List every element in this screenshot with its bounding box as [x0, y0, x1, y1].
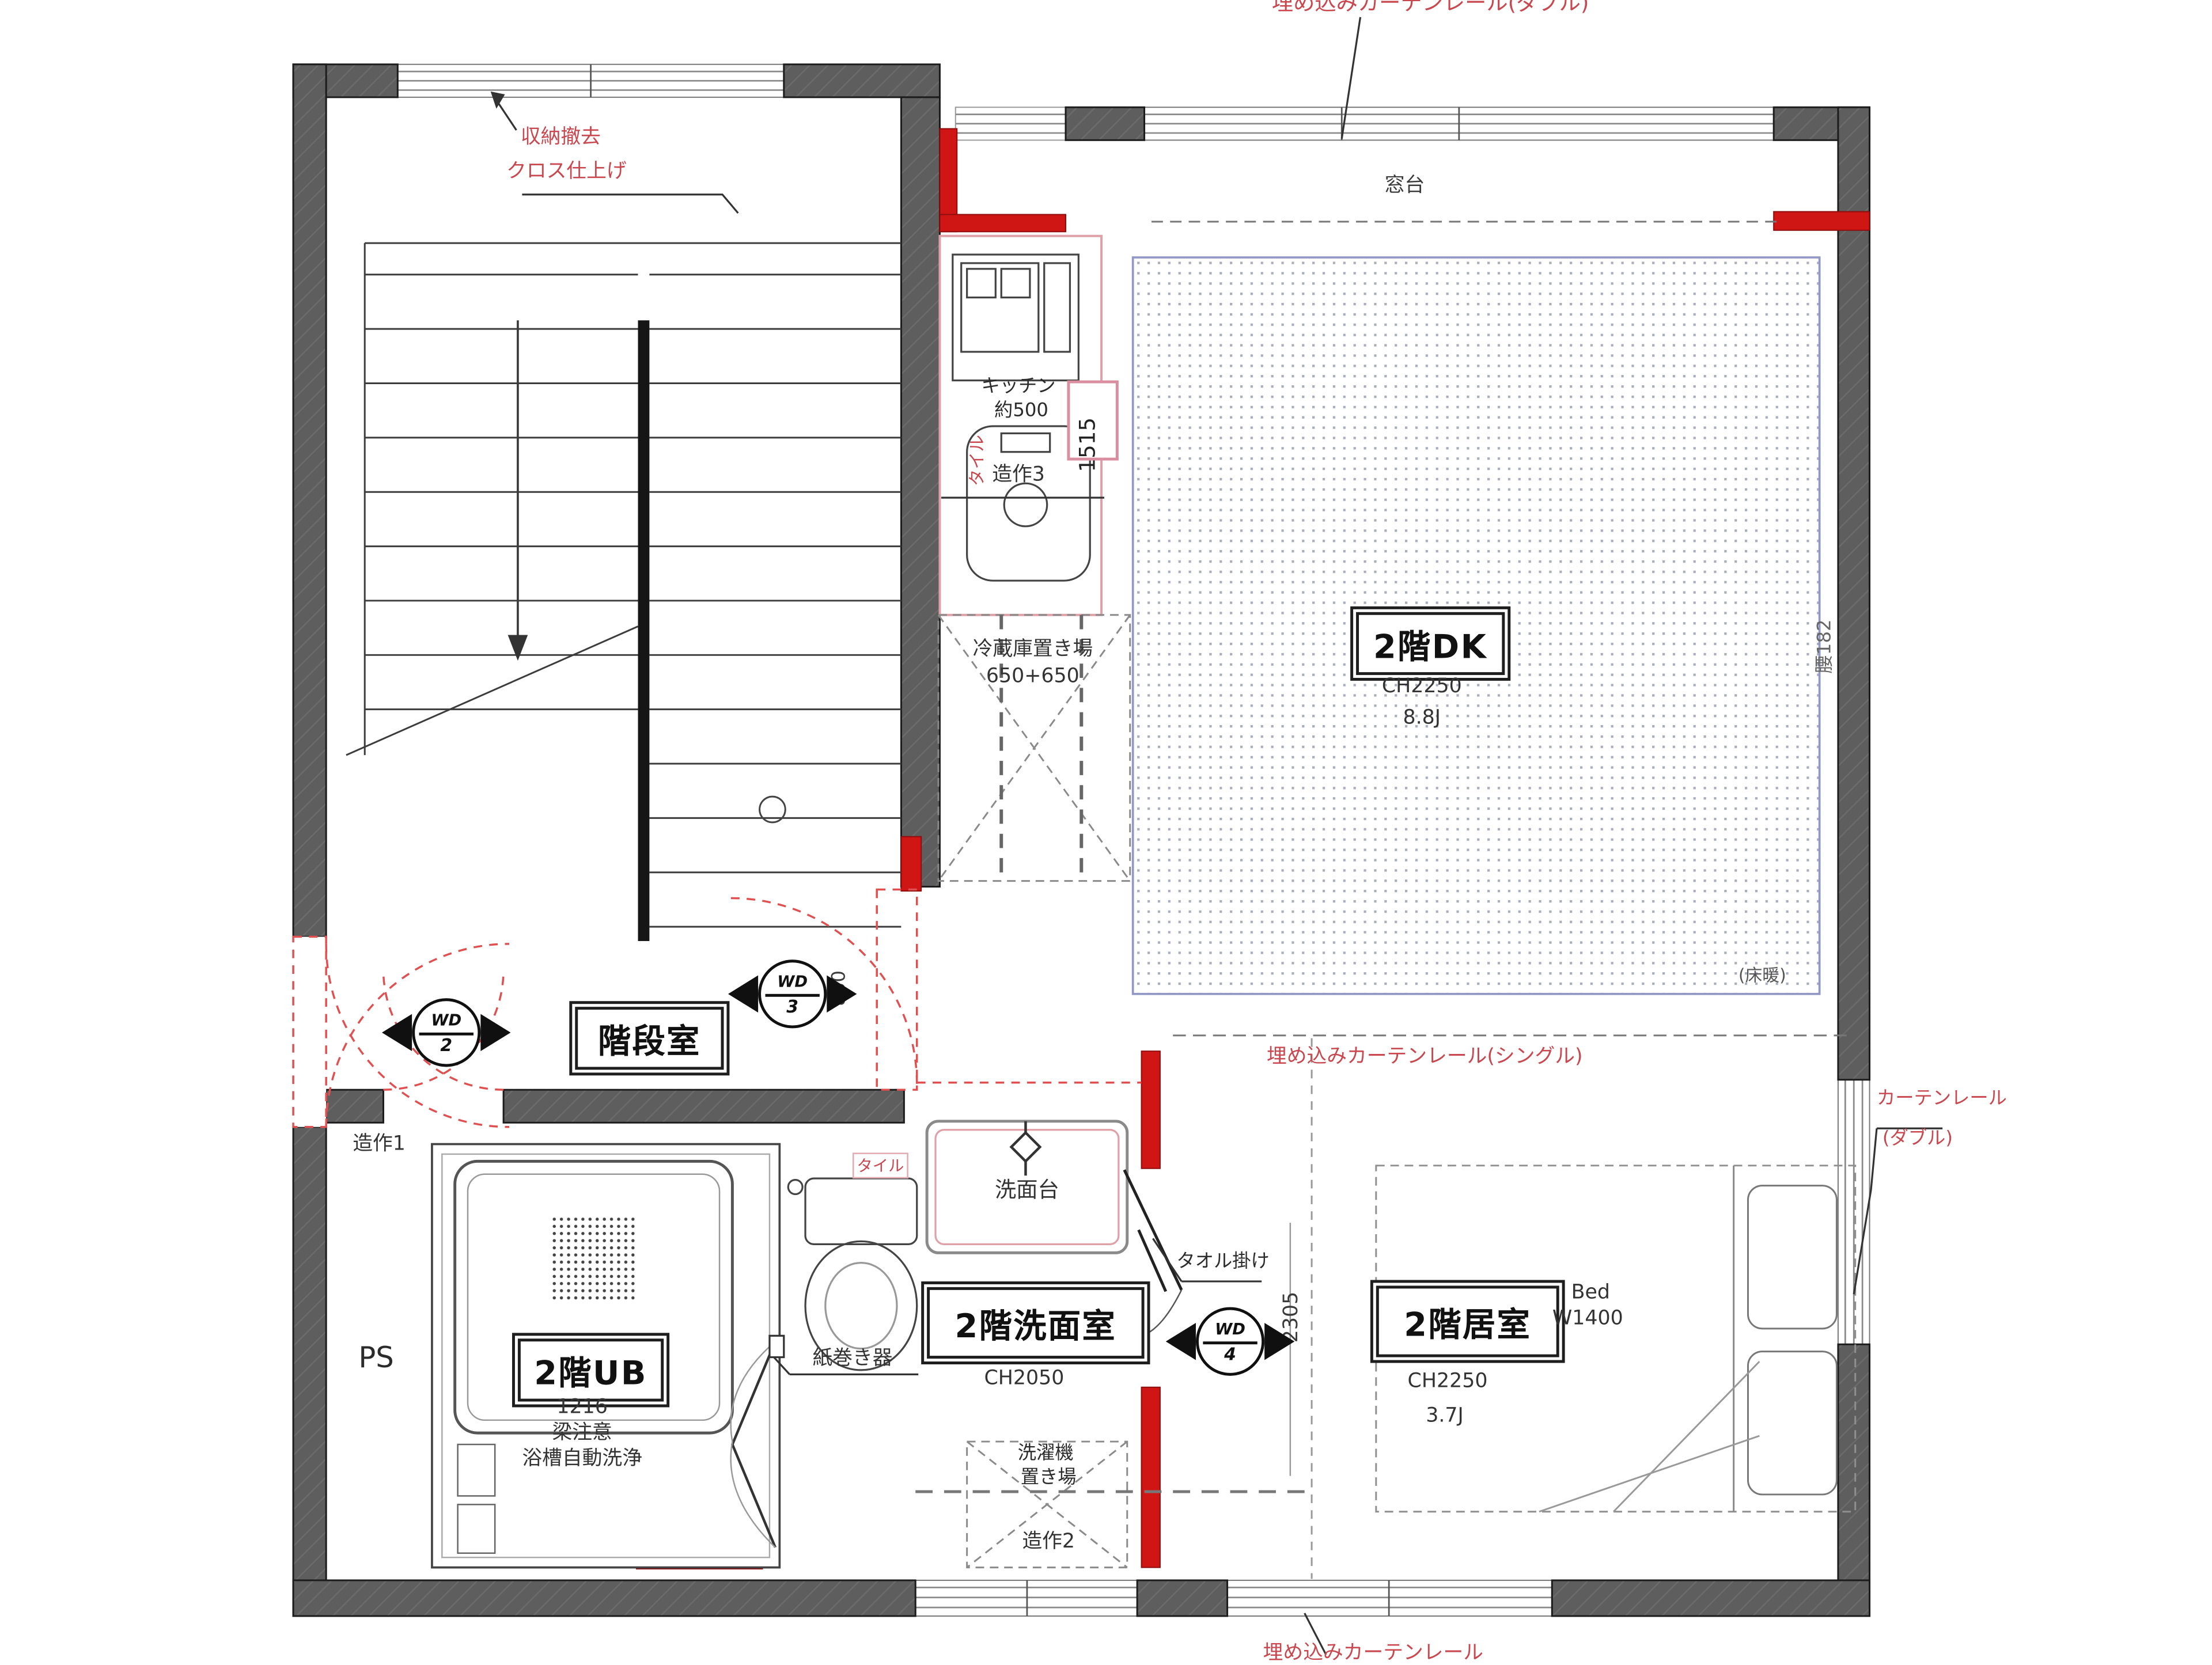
- room-label-stairwell: 階段室: [569, 1001, 729, 1075]
- toilet: [770, 1178, 917, 1370]
- washer-label-2: 置き場: [1021, 1469, 1077, 1490]
- door-marker-wd3: WD3: [728, 961, 857, 1027]
- washbasin-counter: [927, 1121, 1166, 1292]
- door-triangle-left-icon: [1166, 1323, 1196, 1360]
- door-triangle-left-icon: [382, 1014, 412, 1052]
- washer-label-1: 洗濯機: [1018, 1444, 1074, 1466]
- ub-size: 1216: [556, 1396, 608, 1419]
- bedroom-ceiling: CH2250: [1408, 1370, 1488, 1393]
- dim-sill-height: 腰182: [1816, 619, 1838, 673]
- towel-bar-label: タオル掛け: [1176, 1253, 1269, 1274]
- fixture2-label: 造作2: [1022, 1530, 1075, 1553]
- note-curtain-rail-single: 埋め込みカーテンレール(シングル): [1267, 1045, 1583, 1068]
- washer-space: [915, 1442, 1312, 1568]
- note-curtain-rail-right-1: カーテンレール: [1877, 1090, 2007, 1111]
- door-marker-wd2: WD2: [382, 1000, 510, 1065]
- door-triangle-left-icon: [728, 976, 758, 1013]
- door-marker-wd4: WD4: [1166, 1309, 1294, 1374]
- floor-plan-2f: 埋め込みカーテンレール(ダブル) 収納撤去 クロス仕上げ 埋め込みカーテンレール…: [0, 0, 2211, 1659]
- fridge-size-label: 650+650: [986, 665, 1080, 688]
- ub-note: 浴槽自動洗浄: [522, 1447, 642, 1470]
- kitchen-label: キッチン: [981, 378, 1055, 399]
- washroom-ceiling: CH2050: [984, 1367, 1065, 1390]
- bed-label: Bed: [1571, 1281, 1610, 1304]
- room-label-bedroom: 2階居室: [1370, 1280, 1565, 1363]
- bed-width-label: W1400: [1552, 1307, 1623, 1330]
- fridge-label: 冷蔵庫置き場: [973, 638, 1093, 661]
- floorplan-linework: [0, 0, 2211, 1659]
- note-curtain-rail-bottom: 埋め込みカーテンレール: [1263, 1642, 1483, 1665]
- ub-warning: 梁注意: [552, 1421, 612, 1444]
- paper-holder-label: 紙巻き器: [812, 1347, 892, 1370]
- note-tile-kitchen: タイル: [968, 435, 988, 486]
- room-label-dk: 2階DK: [1350, 606, 1510, 681]
- dim-1515-box: 1515: [1067, 381, 1118, 461]
- dk-floor-heating-label: (床暖): [1738, 967, 1786, 987]
- cooktop: [953, 255, 1079, 381]
- note-curtain-rail-top: 埋め込みカーテンレール(ダブル): [1272, 0, 1589, 16]
- fixture1-label: 造作1: [353, 1133, 406, 1156]
- fixture3-label: 造作3: [992, 464, 1045, 487]
- dk-area: 8.8J: [1403, 707, 1441, 730]
- washbasin-label: 洗面台: [995, 1178, 1059, 1203]
- door-triangle-right-icon: [827, 976, 857, 1013]
- kitchen-width-label: 約500: [994, 402, 1048, 423]
- note-curtain-rail-right-2: (ダブル): [1883, 1130, 1953, 1151]
- room-label-washroom: 2階洗面室: [921, 1281, 1150, 1364]
- window-sill-label: 窓台: [1385, 175, 1425, 198]
- note-storage-removal: 収納撤去: [521, 126, 601, 149]
- room-label-ps: PS: [358, 1341, 393, 1374]
- door-triangle-right-icon: [480, 1014, 510, 1052]
- bedroom-area: 3.7J: [1426, 1405, 1464, 1428]
- staircase: [346, 243, 901, 941]
- dk-ceiling: CH2250: [1382, 675, 1462, 698]
- note-tile-wash: タイル: [853, 1152, 908, 1178]
- door-triangle-right-icon: [1264, 1323, 1294, 1360]
- note-cross-finish: クロス仕上げ: [506, 160, 627, 183]
